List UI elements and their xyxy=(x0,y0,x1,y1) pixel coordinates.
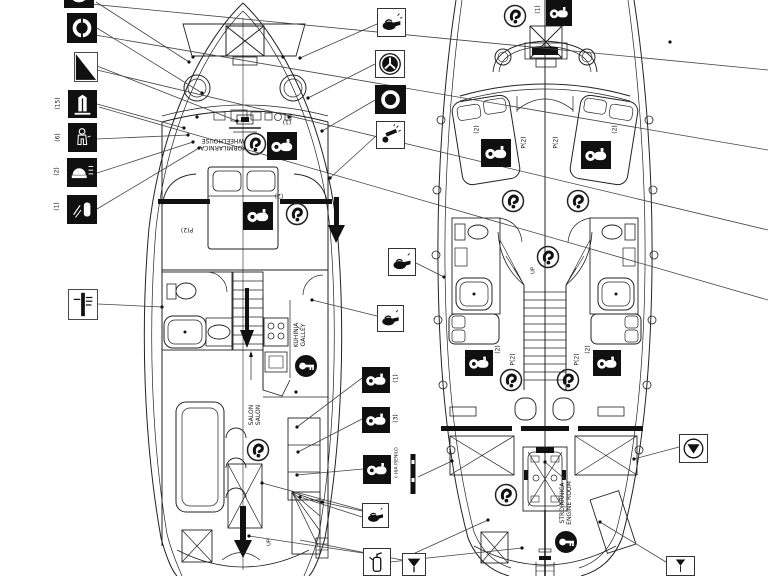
liferaft-count: (2) xyxy=(54,163,61,181)
fire-extinguisher-sign-foam xyxy=(363,455,391,484)
fuel-valve-sign xyxy=(679,434,708,463)
signal-flag-sign xyxy=(74,52,98,82)
portable-extinguisher-outline-sign xyxy=(363,548,391,576)
fire-bucket-horn-sign xyxy=(377,8,406,37)
lifebuoy-sign xyxy=(67,13,97,43)
aft-stbd-ext-count: (2) xyxy=(585,343,592,357)
ship-wheel-sign xyxy=(375,50,405,78)
immersion-suit-count: (6) xyxy=(55,129,62,147)
aft-port-berths: P(2) xyxy=(510,351,517,369)
rescue-beacon-sign xyxy=(67,195,97,224)
fwd-port-berths: P(2) xyxy=(521,134,528,152)
lifebuoy-sign-mid xyxy=(375,85,406,114)
fwd-port-ext-count: (2) xyxy=(474,123,481,137)
lifejacket-sign xyxy=(68,90,97,118)
aft-port-ext-count: (2) xyxy=(495,343,502,357)
lifejacket-count: (15) xyxy=(55,95,62,113)
left-stairs-up-label: UP xyxy=(268,535,273,551)
butterfly-valve-sign xyxy=(666,556,695,576)
fire-extinguisher-sign-fwd-cabin xyxy=(243,202,273,230)
beacon-count: (1) xyxy=(54,198,61,216)
ext-a-count: (1) xyxy=(393,370,400,388)
fire-plan-sign xyxy=(68,289,98,320)
left-cabin-berths: P(2) xyxy=(178,226,196,233)
fire-extinguisher-sign-a xyxy=(362,367,390,393)
fwd-stbd-ext-count: (2) xyxy=(612,123,619,137)
wheelhouse-ext-count: (1) xyxy=(280,118,294,125)
right-stairs-up-label: UP xyxy=(532,263,537,279)
yacht-fire-safety-deck-plan: (15) (6) (2) (1) (1) (3) (-)6A PJENILO xyxy=(0,0,768,576)
fwd-stbd-berths: P(2) xyxy=(553,134,560,152)
bow-ext-count: (1) xyxy=(535,3,542,17)
engine-room-label: STROJARNICAENGINE ROOM xyxy=(559,475,573,531)
aft-stbd-berths: P(2) xyxy=(574,351,581,369)
liferaft-sign xyxy=(67,158,97,187)
immersion-suit-sign xyxy=(68,123,97,152)
fire-extinguisher-sign-b xyxy=(362,407,390,433)
ext-b-count: (3) xyxy=(393,410,400,428)
fire-bucket-horn-sign-3 xyxy=(377,305,404,332)
lifebuoy-with-light-sign xyxy=(64,0,94,8)
fire-extinguisher-sign-aft-stbd xyxy=(593,350,621,376)
valve-sign-bottom xyxy=(402,553,426,576)
leader-lines xyxy=(90,2,768,562)
salon-label: SALONSALON xyxy=(248,397,262,433)
wheelhouse-label: KORMILARNICAWHEELHOUSE xyxy=(168,137,278,151)
galley-label: KUHINJAGALLEY xyxy=(293,313,307,357)
fire-extinguisher-sign-aft-port xyxy=(465,350,493,376)
fire-bucket-horn-sign-4 xyxy=(362,503,389,528)
fire-extinguisher-sign-fwd-port xyxy=(481,139,511,167)
fire-extinguisher-sign-bow xyxy=(546,0,572,26)
hand-flare-sign xyxy=(376,121,405,149)
foam-extinguisher-label: (-)6A PJENILO xyxy=(394,436,401,490)
fire-bucket-horn-sign-2 xyxy=(388,248,416,276)
fire-axe-sign xyxy=(408,452,418,496)
left-cabin-ext-count: (2) xyxy=(272,192,286,199)
fire-extinguisher-sign-fwd-stbd xyxy=(581,141,611,169)
